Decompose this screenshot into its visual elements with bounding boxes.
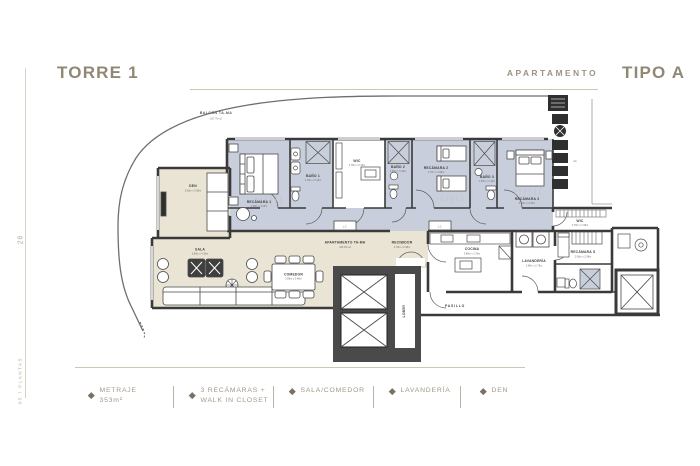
lc-label-1: L.C. <box>343 226 348 229</box>
legend-item-recamaras: 3 RECÁMARAS +WALK IN CLOSET <box>190 386 268 405</box>
recamara-s-label: RECÁMARA S <box>571 249 596 254</box>
ac-units <box>548 95 612 204</box>
legend-divider <box>373 386 374 408</box>
legend: METRAJE353m² 3 RECÁMARAS +WALK IN CLOSET… <box>75 386 535 410</box>
diamond-icon <box>88 392 94 398</box>
den-label: DEN <box>189 184 197 188</box>
comedor-dims: 3.88m x 2.48m <box>285 278 302 281</box>
aa-label: AA <box>573 160 577 163</box>
recamara3-dims: 3.98m x 4.08m <box>519 202 536 205</box>
legend-divider <box>460 386 461 408</box>
diamond-icon <box>389 388 395 394</box>
recamara1-label: RECÁMARA 1 <box>247 199 271 204</box>
recibidor-label: RECIBIDOR <box>392 241 413 245</box>
wic1-label: WIC <box>353 159 361 163</box>
elevator-core <box>333 258 425 362</box>
lavanderia-label: LAVANDERÍA <box>522 258 546 263</box>
legend-label: METRAJE <box>100 386 137 396</box>
bano1-dims: 1.78m x 3.18m <box>305 179 322 182</box>
wic3-dims: 2.78m x 1.58m <box>572 224 589 227</box>
diamond-icon <box>289 388 295 394</box>
recamara2-label: RECÁMARA 2 <box>424 165 448 170</box>
legend-label-2: 353m² <box>100 396 137 406</box>
balcony-area: 187.76 m2 <box>210 118 222 121</box>
service-bath-fixtures <box>557 269 600 289</box>
legend-rule <box>75 367 525 368</box>
bano2-label: BAÑO 2 <box>391 164 405 169</box>
legend-label: LAVANDERÍA <box>401 386 451 396</box>
service-shaft <box>616 234 658 314</box>
sala-dims: 6.88m x 4.18m <box>192 253 209 256</box>
lc-label-2: L.C. <box>438 226 443 229</box>
legend-label: DEN <box>492 386 509 396</box>
legend-label: SALA/COMEDOR <box>301 386 365 396</box>
bano3-label: BAÑO 3 <box>480 174 494 179</box>
recamara3-label: RECÁMARA 3 <box>515 196 539 201</box>
bano1-label: BAÑO 1 <box>306 173 320 178</box>
apartment-area-value: 348.93 m2 <box>339 246 351 249</box>
legend-item-den: DEN <box>481 386 508 396</box>
bano2-dims: 1.58m x 3.18m <box>390 170 407 173</box>
wic1-dims: 2.78m x 3.18m <box>349 164 366 167</box>
bano3-dims: 1.58m x 3.18m <box>479 180 496 183</box>
sala-label: SALA <box>195 248 205 252</box>
balcony-label: BALCÓN TA-MA <box>200 110 232 115</box>
diamond-icon <box>189 392 195 398</box>
legend-item-lavanderia: LAVANDERÍA <box>390 386 451 396</box>
cocina-label: COCINA <box>465 247 480 251</box>
legend-label: 3 RECÁMARAS + <box>201 386 269 396</box>
wic3-label: WIC <box>576 219 584 223</box>
diamond-icon <box>480 388 486 394</box>
pasillo-label: PASILLO <box>445 304 465 308</box>
legend-item-sala-comedor: SALA/COMEDOR <box>290 386 365 396</box>
brochure-page: { "header": { "tower": "TORRE 1", "apart… <box>0 0 700 466</box>
recamara-s-dims: 2.08m x 2.98m <box>575 256 592 259</box>
legend-item-metraje: METRAJE353m² <box>89 386 137 405</box>
den-dims: 3.08m x 3.98m <box>185 190 202 193</box>
recibidor-dims: 2.78m x 2.98m <box>394 246 411 249</box>
legend-label-2: WALK IN CLOSET <box>201 396 269 406</box>
apartment-area-label: APARTAMENTO TA-MA <box>325 241 366 245</box>
cocina-dims: 3.88m x 3.78m <box>464 253 481 256</box>
legend-divider <box>273 386 274 408</box>
recamara2-dims: 3.78m x 3.98m <box>428 171 445 174</box>
laundry-machines <box>516 232 549 247</box>
recamara1-dims: 3.98m x 4.28m <box>251 205 268 208</box>
lavanderia-dims: 2.98m x 2.78m <box>526 265 543 268</box>
legend-divider <box>173 386 174 408</box>
comedor-label: COMEDOR <box>284 273 303 277</box>
lobby-label: LOBBY <box>402 304 406 317</box>
